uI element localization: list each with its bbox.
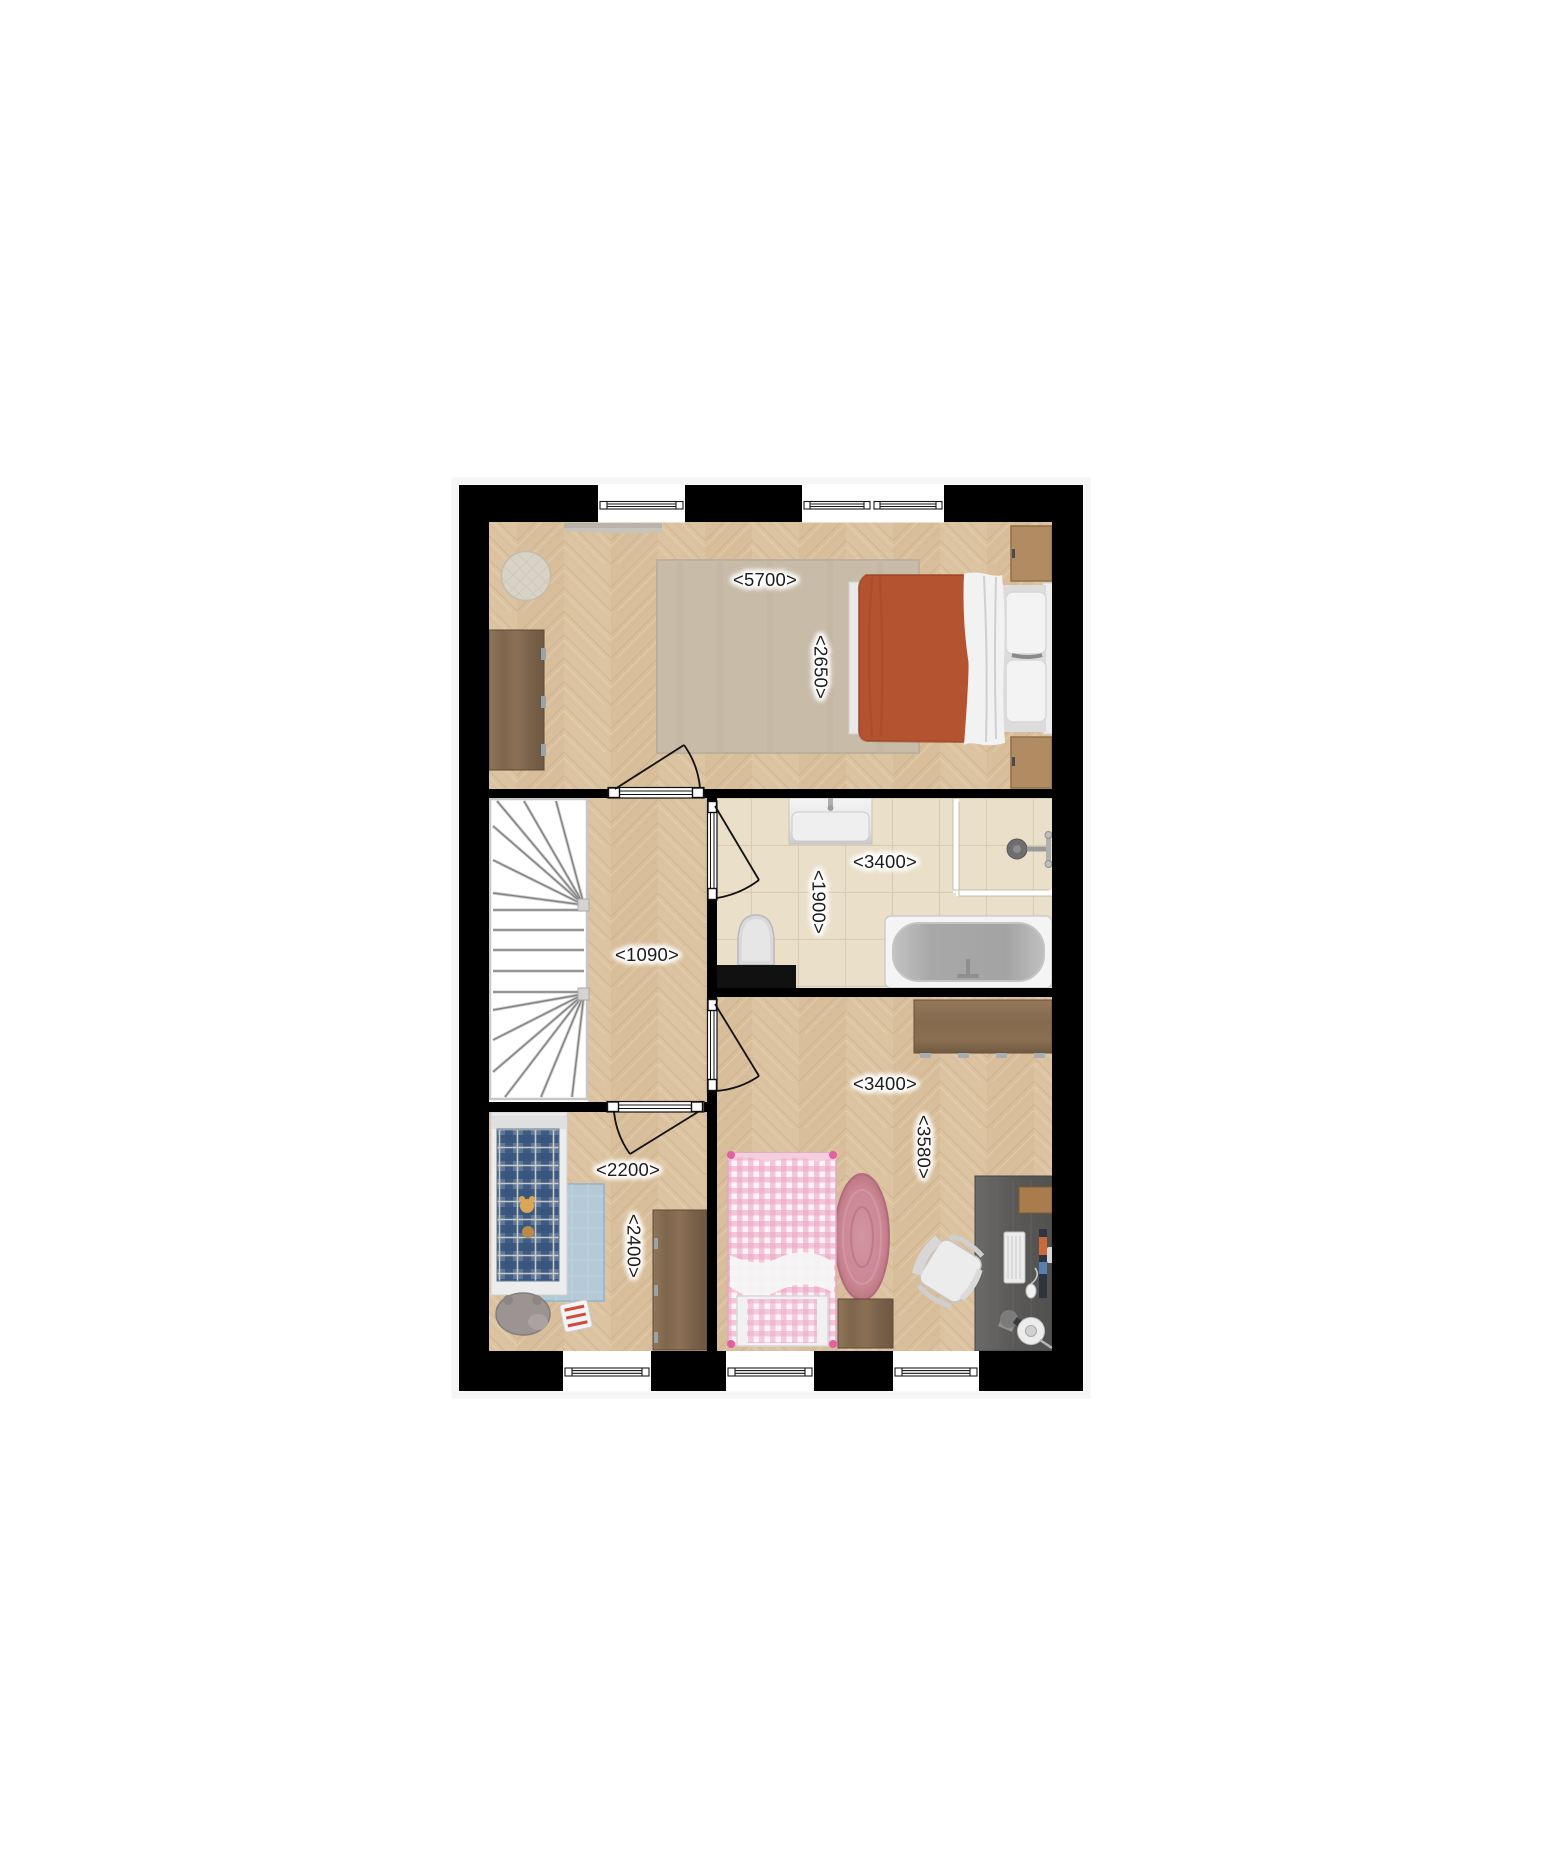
svg-text:<3400>: <3400> [853,851,917,872]
svg-text:<3400>: <3400> [853,1073,917,1094]
svg-text:<1900>: <1900> [809,870,830,934]
svg-text:<1090>: <1090> [615,944,679,965]
svg-text:<2650>: <2650> [811,635,832,699]
svg-text:<3580>: <3580> [914,1115,935,1179]
svg-text:<2400>: <2400> [624,1214,645,1278]
svg-text:<5700>: <5700> [733,569,797,590]
svg-text:<2200>: <2200> [596,1159,660,1180]
